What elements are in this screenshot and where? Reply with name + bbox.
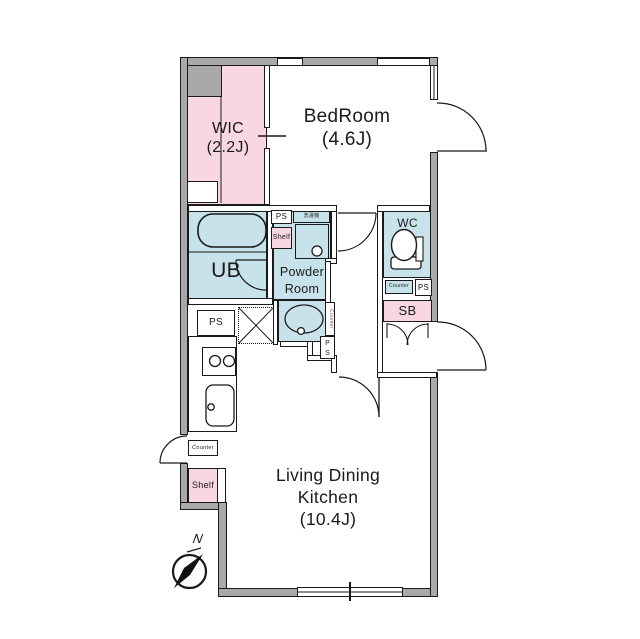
- counter-box-wc: Counter: [385, 280, 413, 294]
- wall-corridor-right: [377, 211, 383, 378]
- washer-label: 洗濯機: [304, 214, 320, 220]
- wall-right-lower: [430, 372, 438, 597]
- ub-name: UB: [211, 259, 241, 283]
- ldk-label: Living Dining Kitchen (10.4J): [248, 464, 408, 530]
- wall-left-upper: [180, 57, 188, 435]
- wall-right-mid: [430, 152, 438, 322]
- ps-box-wc: PS: [415, 279, 432, 296]
- ub-room: [188, 211, 267, 302]
- sb-label: SB: [399, 304, 417, 319]
- ub-label: UB: [186, 258, 266, 284]
- ps-box-kitchen: PS: [197, 310, 235, 336]
- ldk-line1: Living Dining: [276, 464, 380, 486]
- ps-label: PS: [276, 212, 287, 221]
- shelf-side-strip: [217, 468, 226, 503]
- ps-box-upper: PS: [271, 210, 292, 224]
- wic-open-shelf: [186, 181, 218, 203]
- sb-door-left-arc: [387, 324, 408, 345]
- wall-ub-bottom: [188, 298, 273, 305]
- ps-box-stacked: P S: [320, 336, 335, 359]
- bedroom-name: BedRoom: [304, 105, 391, 128]
- wic-label: WIC (2.2J): [188, 119, 268, 157]
- north-letter: N: [192, 531, 204, 546]
- wic-size: (2.2J): [207, 138, 250, 157]
- shelf-box-upper: Shelf: [271, 227, 292, 249]
- washer-label-band: 洗濯機: [293, 211, 330, 223]
- ps-label: PS: [418, 283, 429, 292]
- shelf-box-kitchen: Shelf: [188, 468, 218, 503]
- powder-line2: Room: [285, 281, 320, 298]
- counter-label: Counter: [192, 445, 214, 451]
- window-right: [430, 65, 438, 100]
- wall-corridor-left-upper: [331, 211, 337, 263]
- counter-strip-vertical: Counter: [325, 302, 335, 336]
- wall-nook-bottom: [377, 372, 437, 378]
- shelf-label: Shelf: [273, 234, 290, 242]
- bedroom-door-arc: [338, 213, 376, 251]
- window-bottom: [297, 587, 403, 597]
- stove: [202, 347, 236, 376]
- ldk-line3: (10.4J): [300, 508, 357, 530]
- wall-bedroom-bottom-right: [377, 205, 430, 212]
- ps-label: PS: [209, 317, 223, 329]
- compass-north-tick: [187, 548, 201, 552]
- compass-circle: [173, 555, 206, 588]
- refrigerator-space: [238, 307, 274, 344]
- wc-name: WC: [397, 217, 418, 231]
- counter-box-kitchen: Counter: [188, 440, 218, 456]
- window-top-1: [277, 58, 303, 66]
- sb-box: SB: [383, 300, 432, 322]
- entrance-door-arc: [160, 436, 187, 463]
- balcony-door-upper-arc: [437, 103, 486, 151]
- wall-lowerleft-vertical: [218, 502, 227, 597]
- wc-label: WC: [383, 217, 432, 231]
- window-top-2: [377, 58, 430, 66]
- shelf-label: Shelf: [192, 480, 214, 490]
- powder-line1: Powder: [280, 264, 324, 281]
- compass-north-label: N: [192, 531, 204, 546]
- counter-label: Counter: [389, 284, 409, 290]
- washing-machine: [295, 224, 329, 259]
- counter-label: Counter: [327, 309, 333, 329]
- wic-name: WIC: [212, 119, 244, 138]
- ldk-door-arc: [339, 377, 379, 417]
- floorplan: PS Shelf 洗濯機 Counter P S PS Counter Shel…: [0, 0, 640, 639]
- s-label: S: [321, 349, 334, 359]
- powder-room-label: Powder Room: [273, 264, 331, 298]
- balcony-door-lower-arc: [437, 322, 486, 370]
- p-label: P: [321, 339, 334, 349]
- ldk-line2: Kitchen: [298, 486, 358, 508]
- bedroom-size: (4.6J): [322, 128, 372, 151]
- bedroom-label: BedRoom (4.6J): [277, 105, 417, 151]
- sb-door-right-arc: [407, 324, 428, 345]
- compass-needle-icon: [174, 554, 203, 588]
